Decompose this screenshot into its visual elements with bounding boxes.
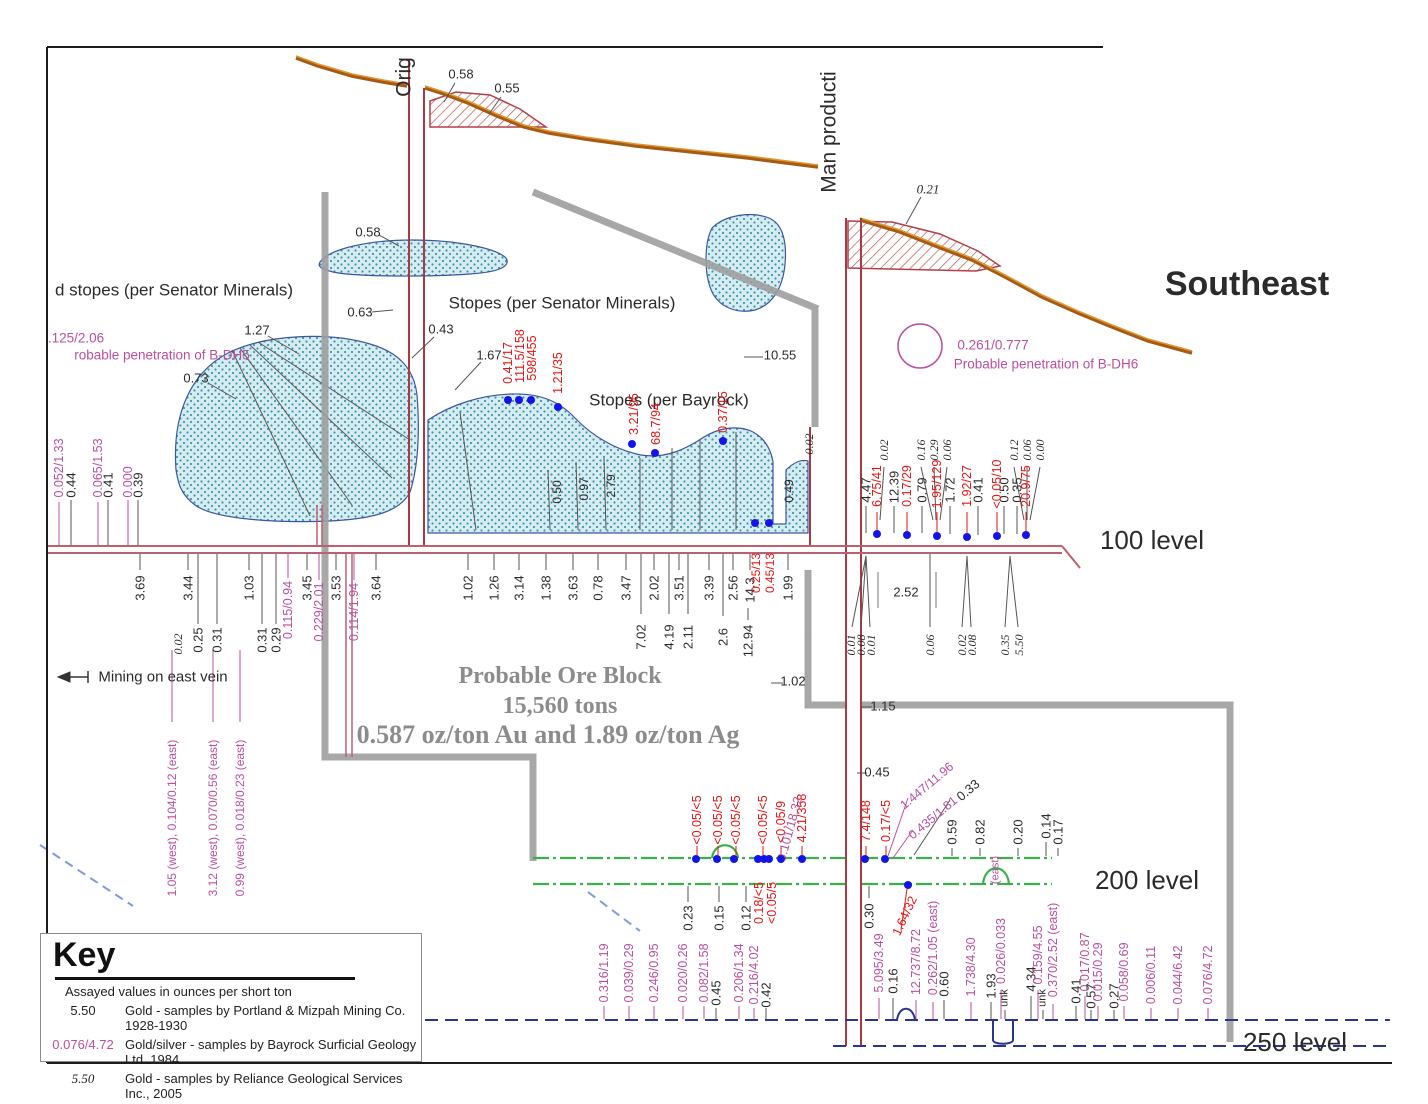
key-desc-reliance: Gold - samples by Reliance Geological Se… (125, 1071, 421, 1101)
leader-line (962, 556, 967, 627)
leader-line (967, 556, 971, 627)
key-desc-portland: Gold - samples by Portland & Mizpah Mini… (125, 1003, 421, 1033)
mine-section-map: SoutheastOrigMan producti100 level200 le… (0, 0, 1428, 1104)
key-entry-reliance: 5.50 Gold - samples by Reliance Geologic… (41, 1071, 421, 1101)
leader-line (1010, 556, 1018, 627)
key-sample-portland: 5.50 (41, 1003, 125, 1018)
leader-line (455, 362, 481, 390)
leader-line (268, 336, 299, 354)
leader-line (940, 467, 947, 520)
key-title: Key (53, 936, 421, 975)
key-sample-reliance: 5.50 (41, 1071, 125, 1087)
leader-line (866, 556, 870, 627)
leader-line (1030, 467, 1040, 520)
leader-line (921, 467, 933, 520)
key-desc-bayrock: Gold/silver - samples by Bayrock Surfici… (125, 1037, 421, 1067)
leader-line (208, 383, 236, 399)
key-rule (55, 977, 355, 980)
leader-line (906, 197, 921, 224)
leader-line (914, 800, 950, 855)
leader-line (888, 798, 908, 856)
leader-line (372, 310, 393, 312)
leader-line (880, 467, 884, 520)
leader-line (934, 467, 936, 520)
leader-line (489, 97, 501, 114)
legend-key: Key Assayed values in ounces per short t… (40, 933, 422, 1062)
leader-line (1005, 556, 1010, 627)
leader-line (901, 889, 907, 930)
leader-line (412, 337, 434, 358)
key-subtitle: Assayed values in ounces per short ton (65, 984, 421, 999)
leader-line (1014, 467, 1024, 520)
key-entry-bayrock: 0.076/4.72 Gold/silver - samples by Bayr… (41, 1037, 421, 1067)
key-entry-portland: 5.50 Gold - samples by Portland & Mizpah… (41, 1003, 421, 1033)
leader-line (444, 83, 455, 102)
key-sample-bayrock: 0.076/4.72 (41, 1037, 125, 1052)
leader-line (379, 235, 399, 246)
